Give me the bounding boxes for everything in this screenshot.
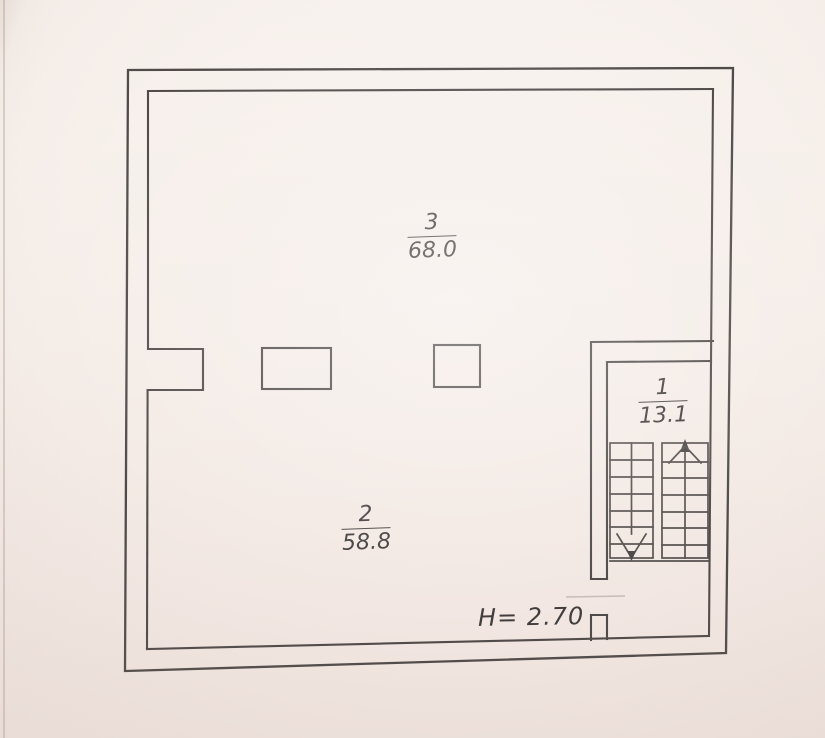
room-area: 58.8 — [342, 527, 392, 555]
room-number: 3 — [407, 210, 457, 237]
floor-plan-svg — [0, 0, 825, 738]
room-2-label: 2 58.8 — [341, 502, 392, 555]
stair-flight-left — [610, 443, 653, 561]
partition-pier-1 — [262, 348, 331, 389]
inner-wall — [147, 89, 713, 649]
height-annotation: H= 2.70 — [478, 602, 585, 632]
outer-wall — [125, 68, 733, 671]
floor-plan-drawing: 3 68.0 2 58.8 1 13.1 H= 2.70 — [0, 0, 825, 738]
stair-up-arrow — [669, 439, 701, 558]
partition-stub — [148, 349, 203, 390]
partition-pier-2 — [434, 345, 480, 387]
floor-plan-photo: 3 68.0 2 58.8 1 13.1 H= 2.70 — [0, 0, 825, 738]
room-number: 2 — [341, 502, 391, 529]
stair-flight-right — [662, 439, 708, 558]
door-opening-line — [566, 596, 625, 597]
room-1-label: 1 13.1 — [638, 375, 689, 428]
room-area: 13.1 — [639, 400, 689, 428]
room-number: 1 — [638, 375, 688, 402]
room-3-label: 3 68.0 — [407, 210, 458, 263]
room-area: 68.0 — [408, 235, 458, 263]
